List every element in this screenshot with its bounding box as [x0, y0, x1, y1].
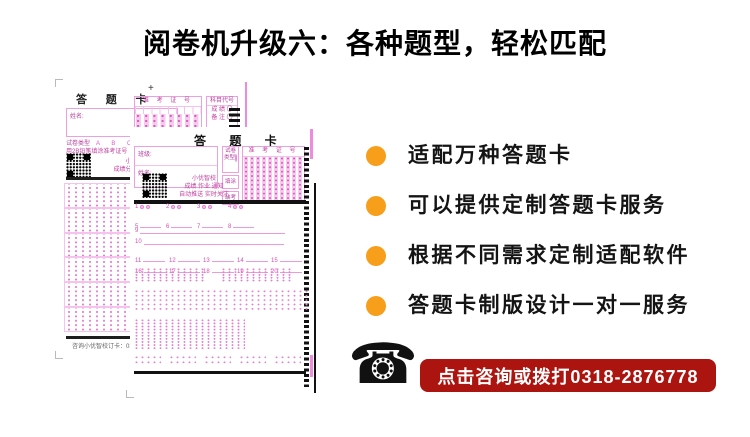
tf-question: 2	[166, 204, 197, 210]
bubble-block	[222, 268, 294, 282]
qr-caption-line: 小优智校	[172, 175, 236, 183]
tf-question: 1	[135, 204, 166, 210]
bubble-icon	[146, 205, 150, 209]
exam-number-cells	[135, 107, 201, 114]
feature-label: 适配万种答题卡	[408, 144, 573, 168]
qr-code	[142, 173, 167, 198]
bubble-icon	[239, 205, 243, 209]
qr-caption-line: 自动推送 实时关注	[172, 191, 236, 199]
bubble-block	[135, 290, 228, 312]
bubble-block	[135, 356, 161, 366]
long-question-row: 10	[135, 238, 284, 245]
bullet-dot-icon	[366, 196, 386, 216]
page-title: 阅卷机升级六：各种题型，轻松匹配	[0, 22, 750, 62]
bubble-icon	[233, 205, 237, 209]
separator-bar	[134, 371, 306, 374]
subject-code-label: 科目代号	[207, 97, 237, 106]
feature-list: 适配万种答题卡 可以提供定制答题卡服务 根据不同需求定制适配软件 答题卡制版设计…	[366, 144, 690, 344]
bubble-block	[233, 290, 310, 312]
paper-type-box: 试卷类型	[222, 146, 239, 173]
exam-number-grid: 准 考 证 号	[242, 146, 305, 202]
registration-mark: +	[148, 83, 154, 94]
bubble-block	[205, 356, 231, 366]
question-number: 9	[135, 228, 138, 234]
edge-stripe	[310, 129, 313, 159]
question-number: 4	[228, 204, 231, 210]
feature-item: 适配万种答题卡	[366, 144, 690, 168]
contact-banner-button[interactable]: 点击咨询或拨打0318-2876778	[420, 359, 716, 392]
question-number: 3	[197, 204, 200, 210]
long-question-row: 9	[135, 227, 285, 234]
answer-sheet-front: 答 题 卡 班级: 姓名: 试卷类型 填涂 缺考 准 考 证 号 小优智校 成绩…	[130, 127, 316, 396]
bubble-block	[135, 319, 245, 350]
bubble-icon	[140, 205, 144, 209]
class-label: 班级:	[135, 147, 217, 166]
bubble-block	[240, 356, 266, 366]
bubble-block	[170, 356, 196, 366]
tf-question: 4	[228, 204, 259, 210]
question-number: 1	[135, 204, 138, 210]
feature-item: 可以提供定制答题卡服务	[366, 194, 690, 218]
crop-mark	[55, 79, 63, 87]
bullet-dot-icon	[366, 246, 386, 266]
bubble-icon	[171, 205, 175, 209]
crop-mark	[55, 351, 63, 359]
separator-bar	[134, 200, 306, 204]
feature-label: 答题卡制版设计一对一服务	[408, 294, 690, 318]
feature-item: 根据不同需求定制适配软件	[366, 244, 690, 268]
qr-caption-line: 成绩 作业 通知	[172, 183, 236, 191]
answer-line	[140, 227, 285, 234]
bubble-icon	[202, 205, 206, 209]
feature-label: 根据不同需求定制适配软件	[408, 244, 690, 268]
answer-line	[144, 238, 284, 245]
tf-question-row: 1 2 3 4	[135, 204, 259, 210]
crop-mark	[126, 390, 134, 398]
qr-caption: 小优智校 成绩 作业 通知 自动推送 实时关注	[172, 175, 236, 199]
question-number: 10	[135, 239, 142, 245]
edge-stripe	[310, 355, 313, 377]
tf-question: 3	[197, 204, 228, 210]
bullet-dot-icon	[366, 146, 386, 166]
page: 阅卷机升级六：各种题型，轻松匹配 答 题 卡 + 姓名: 准 考 证 号 科目代…	[0, 0, 750, 437]
feature-item: 答题卡制版设计一对一服务	[366, 294, 690, 318]
question-number: 2	[166, 204, 169, 210]
exam-number-bubbles	[244, 157, 303, 200]
feature-label: 可以提供定制答题卡服务	[408, 194, 667, 218]
exam-number-label: 准 考 证 号	[135, 97, 201, 107]
bubble-block	[135, 268, 207, 282]
exam-number-label: 准 考 证 号	[243, 147, 304, 157]
bubble-icon	[235, 154, 237, 162]
bubble-block	[275, 356, 301, 366]
telephone-icon: ☎	[348, 334, 418, 396]
edge-stripe	[245, 82, 247, 132]
bullet-dot-icon	[366, 296, 386, 316]
qr-code	[66, 153, 91, 178]
bubble-icon	[177, 205, 181, 209]
sheet-edge-line	[314, 183, 316, 393]
bubble-icon	[208, 205, 212, 209]
